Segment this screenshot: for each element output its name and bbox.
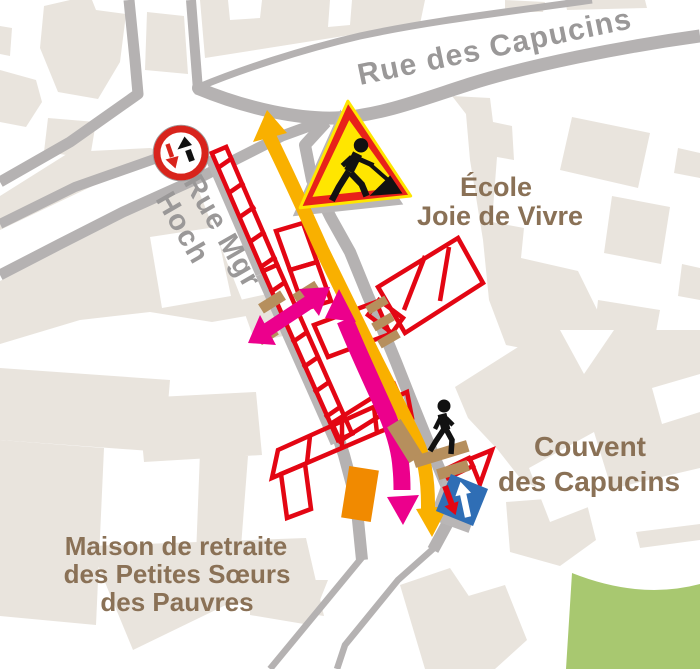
svg-text:Couvent: Couvent — [534, 431, 646, 462]
svg-text:des Capucins: des Capucins — [498, 466, 680, 497]
svg-text:École: École — [460, 171, 532, 202]
svg-text:des Petites Sœurs: des Petites Sœurs — [64, 559, 291, 589]
svg-text:des Pauvres: des Pauvres — [100, 587, 253, 617]
svg-text:Joie de Vivre: Joie de Vivre — [417, 201, 583, 231]
svg-text:Maison de retraite: Maison de retraite — [65, 531, 288, 561]
